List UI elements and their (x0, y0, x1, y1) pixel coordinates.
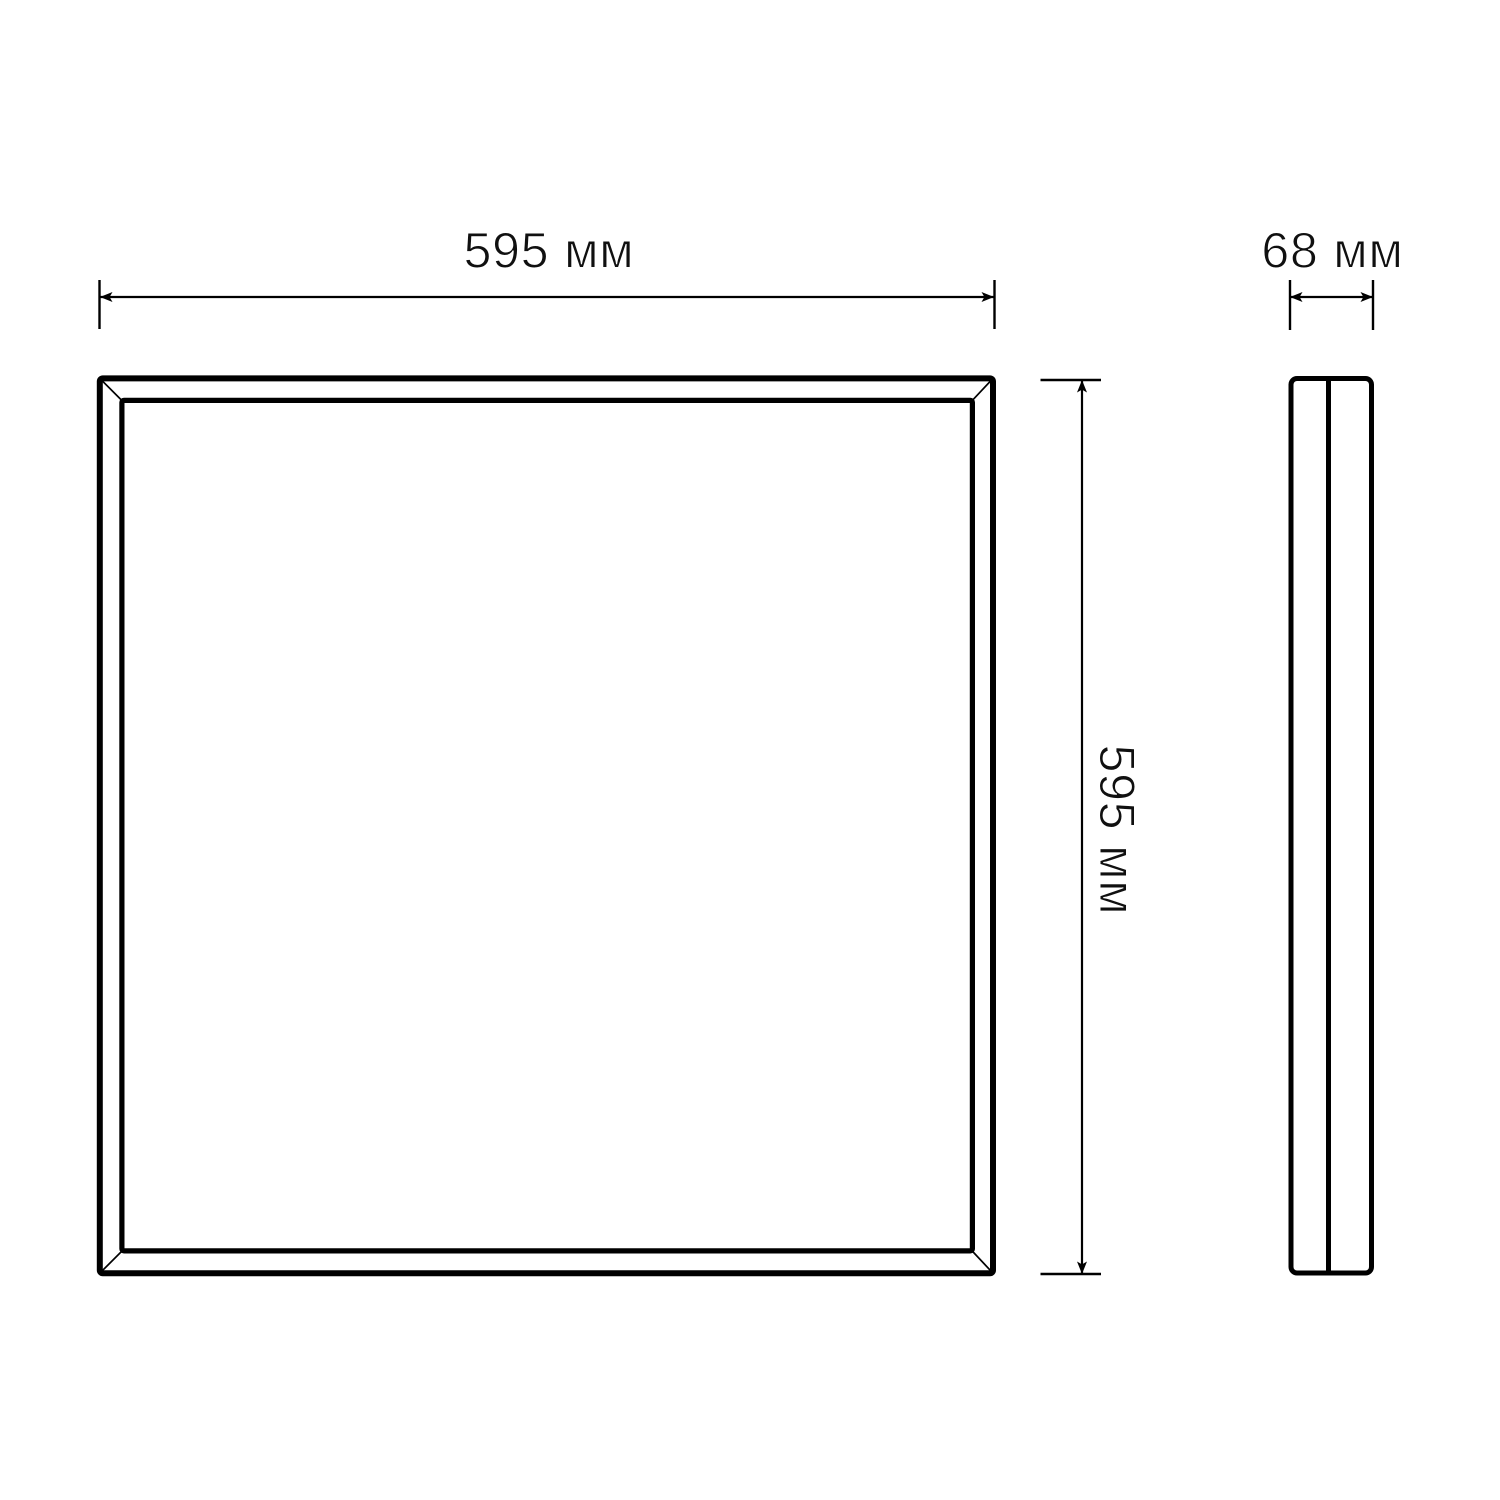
svg-text:68 мм: 68 мм (1261, 222, 1403, 278)
svg-text:595 мм: 595 мм (1089, 745, 1145, 916)
svg-text:595 мм: 595 мм (464, 222, 635, 278)
